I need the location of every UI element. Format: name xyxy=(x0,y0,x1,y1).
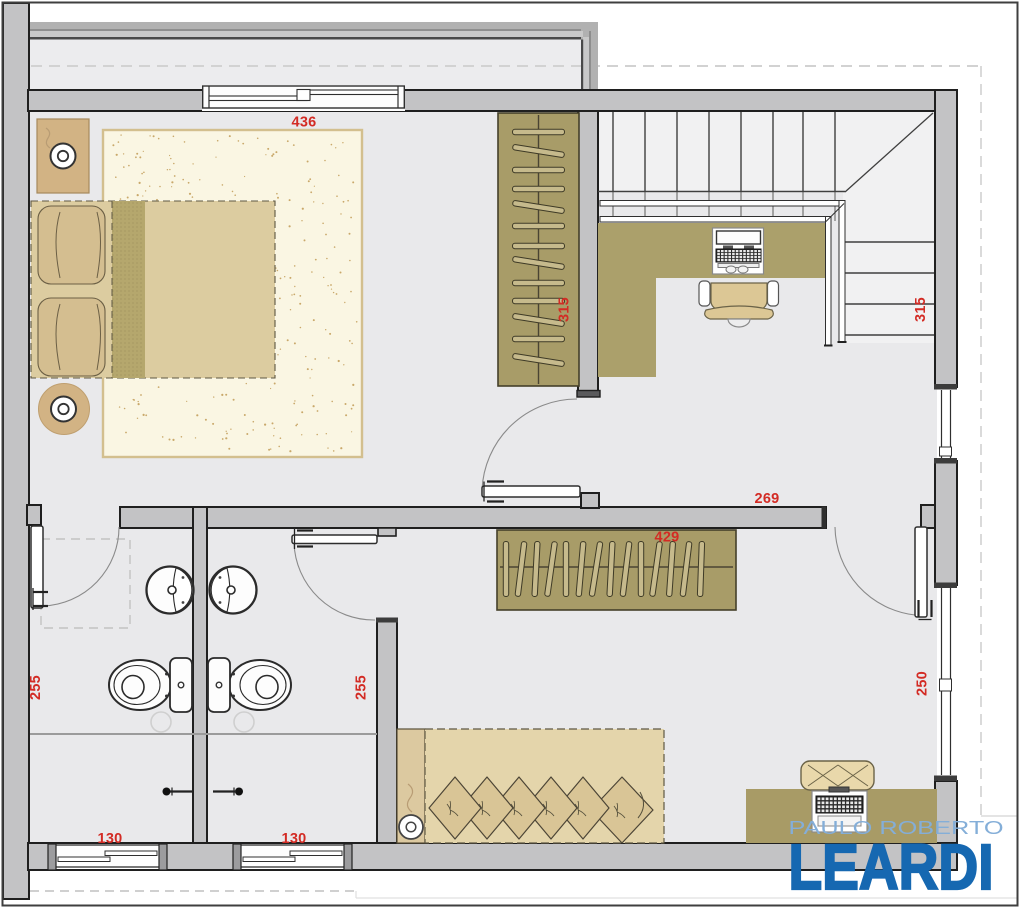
svg-text:436: 436 xyxy=(291,115,316,131)
svg-text:429: 429 xyxy=(654,530,679,546)
svg-text:LEARDI: LEARDI xyxy=(789,831,994,903)
svg-text:315: 315 xyxy=(913,297,929,322)
svg-text:130: 130 xyxy=(281,831,306,847)
svg-text:255: 255 xyxy=(354,675,370,700)
svg-text:269: 269 xyxy=(754,491,779,507)
svg-text:315: 315 xyxy=(557,297,573,322)
svg-text:255: 255 xyxy=(28,675,44,700)
svg-text:130: 130 xyxy=(97,831,122,847)
svg-text:250: 250 xyxy=(915,671,931,696)
